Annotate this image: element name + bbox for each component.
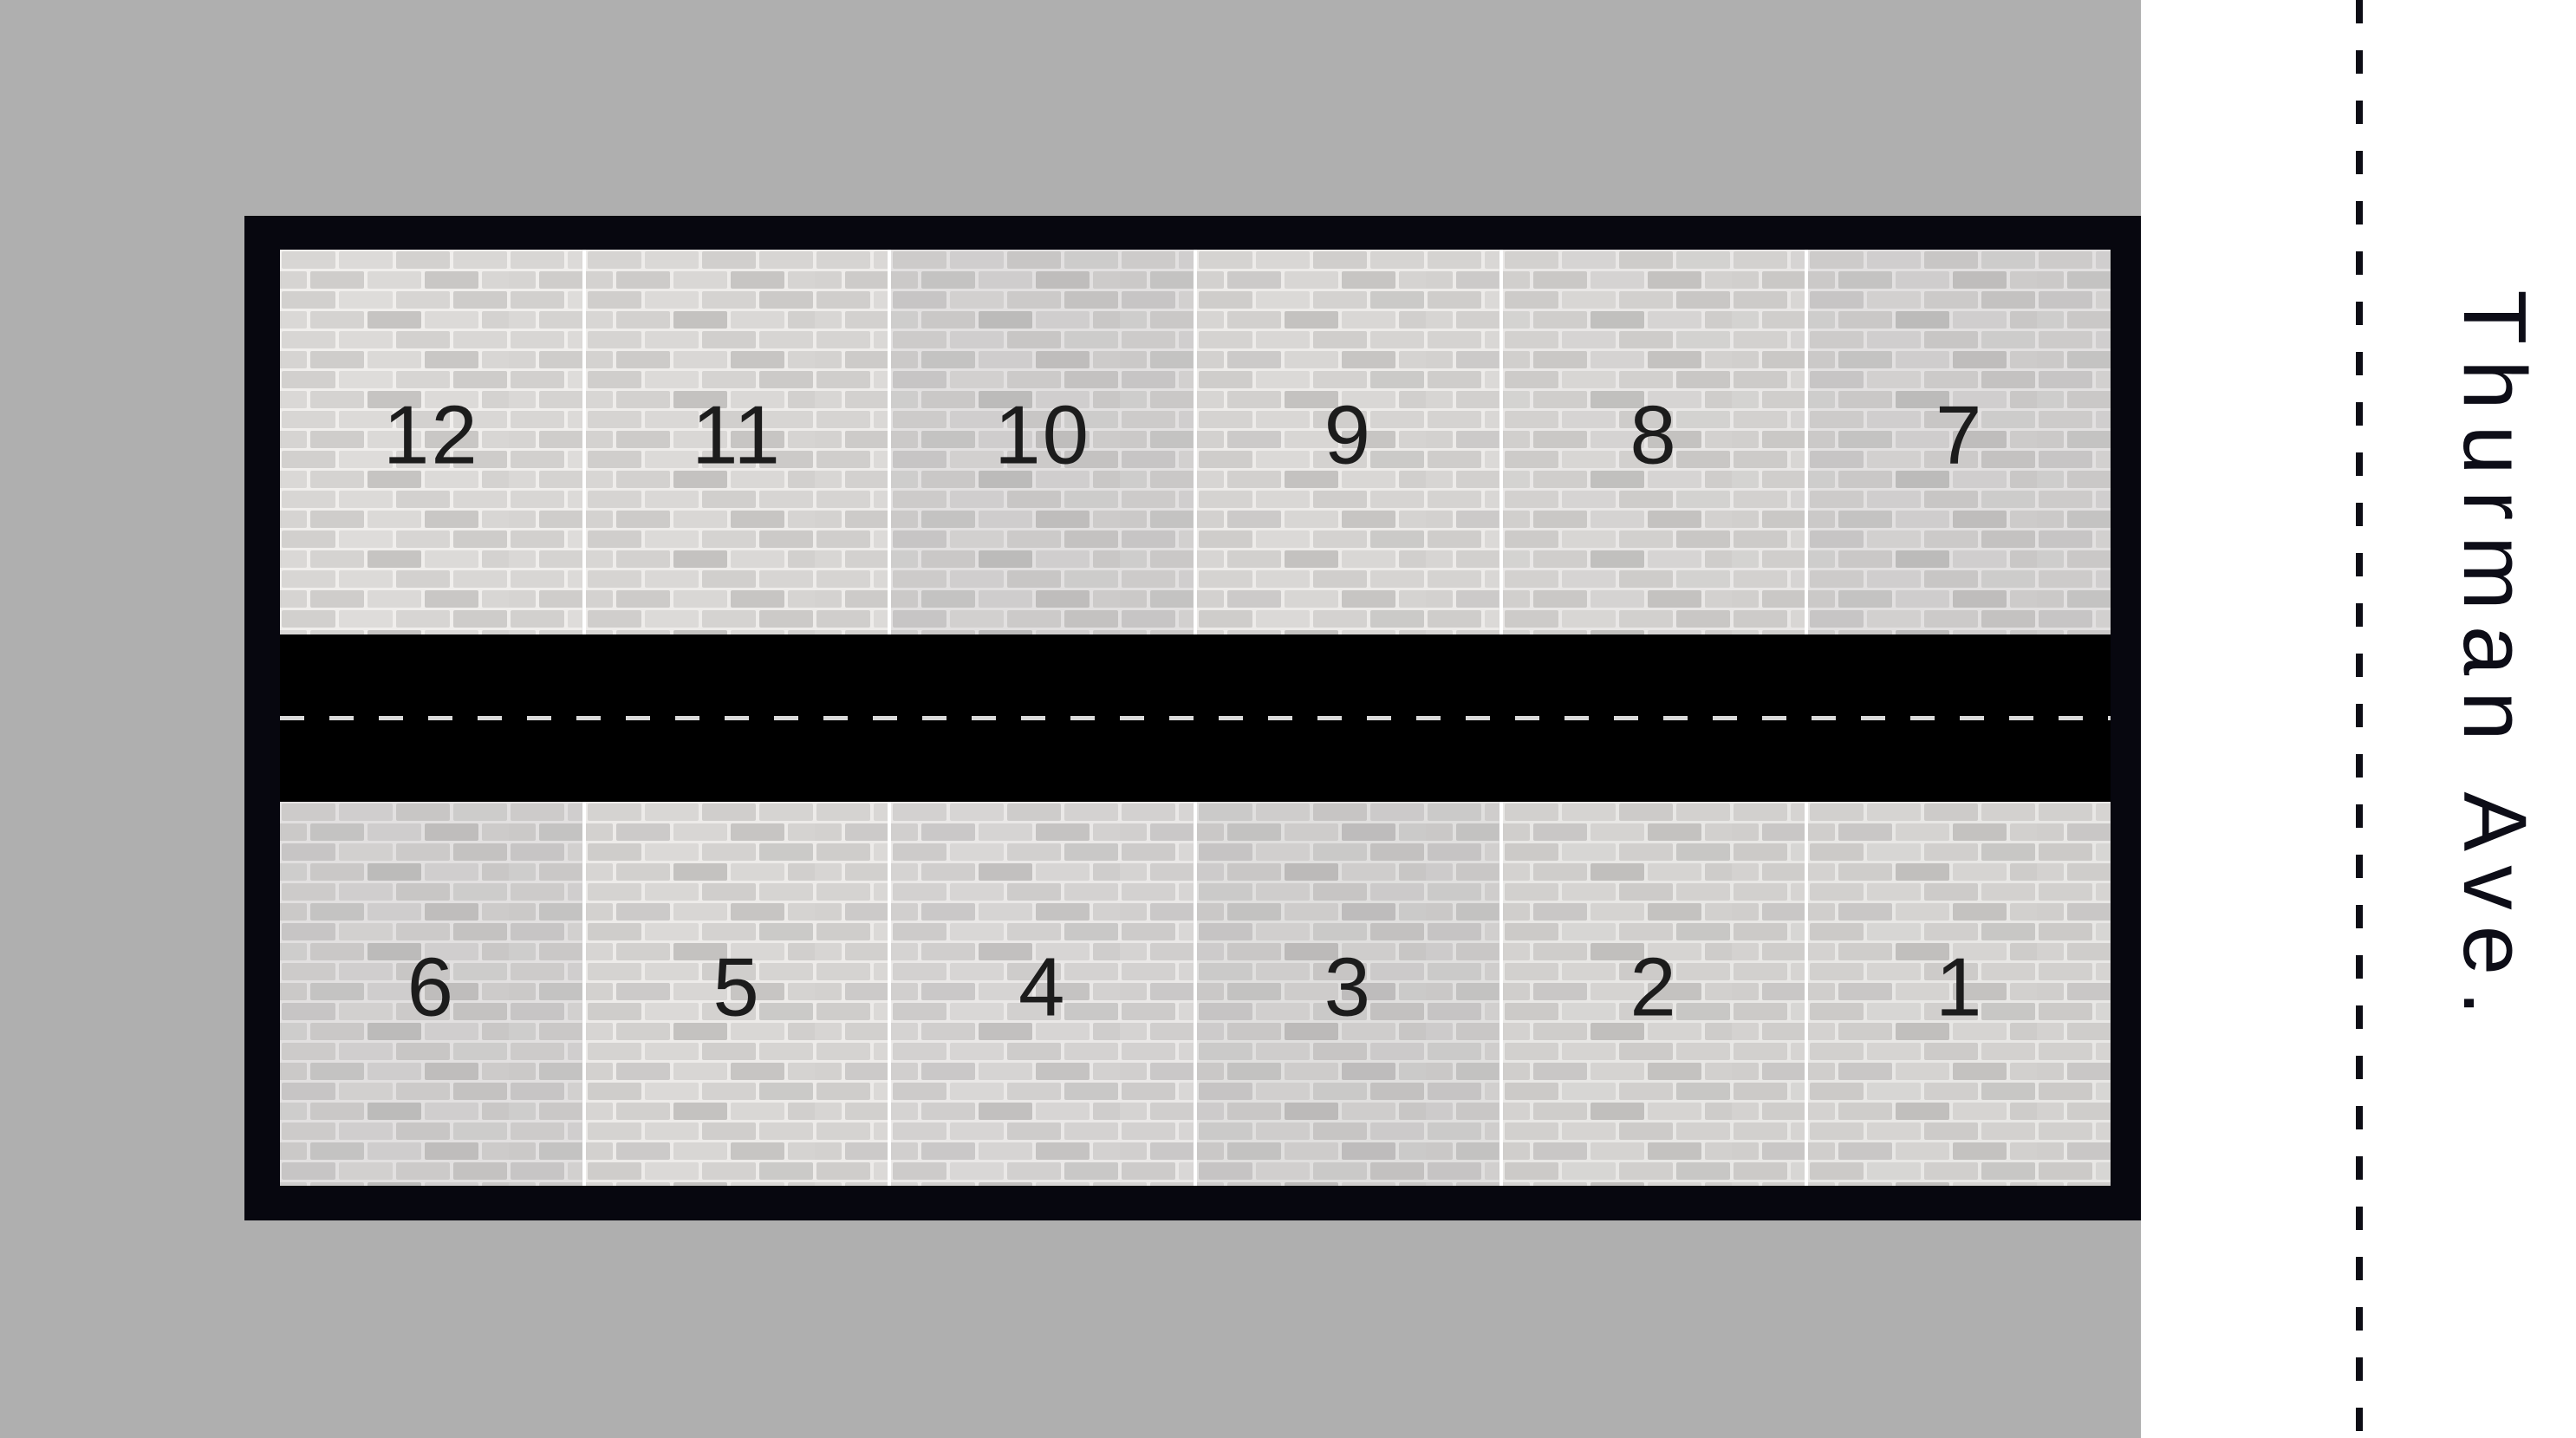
unit-11[interactable]: 11	[586, 250, 888, 634]
unit-9[interactable]: 9	[1197, 250, 1499, 634]
unit-number-label: 11	[586, 394, 888, 477]
unit-8[interactable]: 8	[1503, 250, 1805, 634]
unit-12[interactable]: 12	[280, 250, 582, 634]
unit-number-label: 10	[891, 394, 1194, 477]
driveway-center-dashed-line	[280, 716, 2111, 720]
unit-1[interactable]: 1	[1808, 802, 2111, 1186]
unit-6[interactable]: 6	[280, 802, 582, 1186]
storage-building-interior: 121110987 654321	[280, 250, 2111, 1186]
unit-4[interactable]: 4	[891, 802, 1194, 1186]
unit-number-label: 7	[1808, 394, 2111, 477]
unit-number-label: 12	[280, 394, 582, 477]
unit-10[interactable]: 10	[891, 250, 1194, 634]
interior-driveway	[280, 634, 2111, 802]
unit-row-south: 654321	[280, 802, 2111, 1186]
unit-number-label: 9	[1197, 394, 1499, 477]
unit-number-label: 3	[1197, 946, 1499, 1029]
unit-5[interactable]: 5	[586, 802, 888, 1186]
street-boundary-dashed-line	[2356, 0, 2363, 1438]
unit-number-label: 8	[1503, 394, 1805, 477]
unit-7[interactable]: 7	[1808, 250, 2111, 634]
street-name-label: Thurman Ave.	[2443, 290, 2546, 1031]
storage-building-outline: 121110987 654321	[244, 216, 2141, 1220]
facility-map: 121110987 654321 Thurman Ave.	[0, 0, 2576, 1438]
unit-3[interactable]: 3	[1197, 802, 1499, 1186]
unit-number-label: 2	[1503, 946, 1805, 1029]
unit-row-north: 121110987	[280, 250, 2111, 634]
unit-number-label: 5	[586, 946, 888, 1029]
unit-number-label: 4	[891, 946, 1194, 1029]
unit-number-label: 1	[1808, 946, 2111, 1029]
unit-number-label: 6	[280, 946, 582, 1029]
unit-2[interactable]: 2	[1503, 802, 1805, 1186]
